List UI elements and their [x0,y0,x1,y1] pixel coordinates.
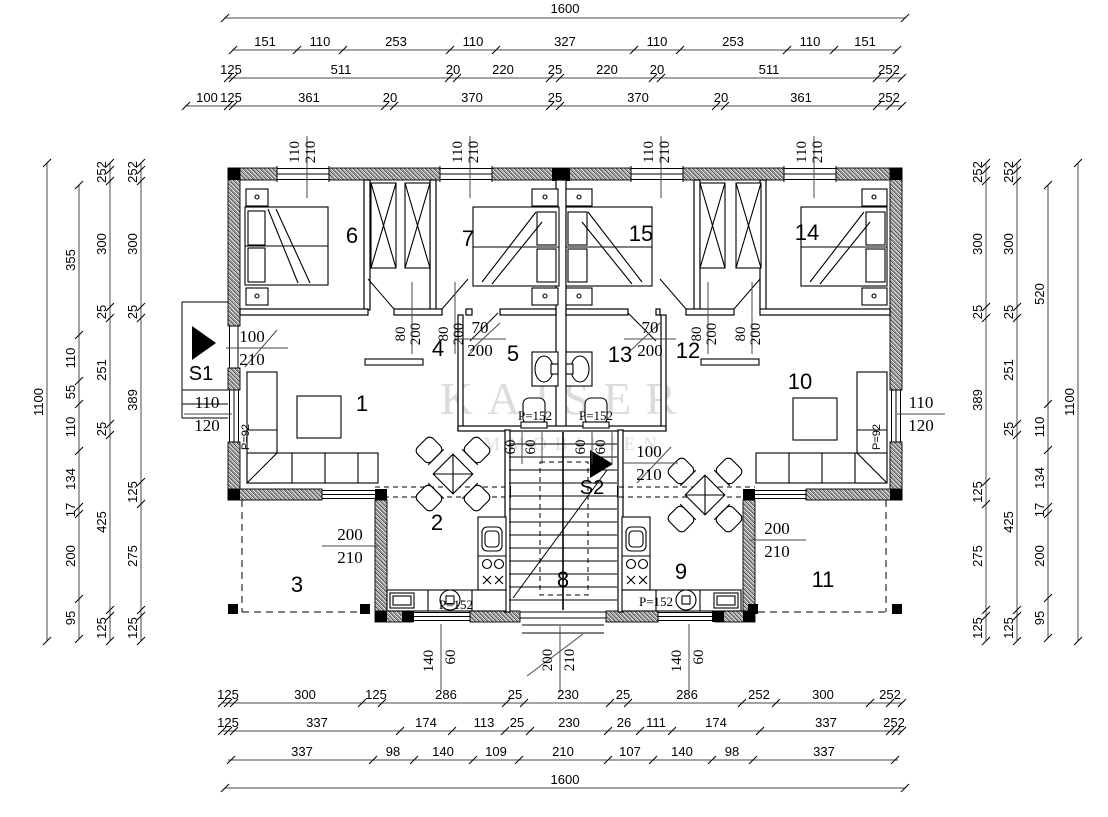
dimension-labels-bottom: 125 300 125 286 25 230 25 286 252 300 25… [217,687,905,787]
door-label: 200 [408,323,424,346]
dim-label: 511 [759,62,780,77]
window-bottom-left [413,611,470,622]
dim-label: 20 [383,90,397,105]
window-label: 210 [810,141,826,164]
dim-label: 60 [523,440,539,455]
dim-label: 337 [291,744,313,759]
room-label-14: 14 [795,220,819,245]
dim-label: 17 [63,503,78,517]
parapet-label-left: P=92 [240,424,252,450]
toilet-label-right: P=152 [579,408,613,423]
room-label-9: 9 [675,559,687,584]
dim-label: 511 [331,62,352,77]
door-label: 200 [704,323,720,346]
dim-label: 125 [125,617,140,639]
dim-label: 389 [125,389,140,411]
dim-label: 252 [970,161,985,183]
dim-label: 25 [970,305,985,319]
floor-plan-drawing: KAISER IMMOBILIEN [0,0,1108,817]
dimension-labels-top: 1600 151 110 253 110 327 110 253 110 151… [196,1,900,105]
floor-plan-page: KAISER IMMOBILIEN [0,0,1108,817]
dim-label: 110 [800,34,821,49]
bed-room-15 [566,189,652,305]
window-label: 110 [909,393,934,412]
room-label-5: 5 [507,341,519,366]
door-label: 210 [764,542,790,561]
dim-label: 252 [878,90,900,105]
dim-label: 252 [125,161,140,183]
window-right [890,390,902,442]
door-label: 100 [239,327,265,346]
door-label: 200 [748,323,764,346]
dining-set-left [414,435,492,513]
door-label: 210 [562,649,578,672]
dim-label: 425 [94,511,109,533]
dim-label: 252 [878,62,900,77]
dim-label: 110 [1032,417,1047,438]
window-bottom-right [658,611,715,622]
dim-label: 174 [705,715,727,730]
coffee-table-1 [297,396,341,438]
dim-label: 60 [573,440,589,455]
dim-label: 140 [432,744,454,759]
window-label: 120 [908,416,934,435]
dim-label: 252 [94,161,109,183]
dim-label: 25 [548,62,562,77]
door-label: 70 [472,318,489,337]
dim-label: 134 [63,468,78,490]
sofa-living-10 [756,372,887,483]
dim-label: 25 [548,90,562,105]
door-label: 80 [436,327,452,342]
dim-label: 98 [725,744,739,759]
door-label: 200 [467,341,493,360]
door-label: 200 [764,519,790,538]
dim-label: 107 [619,744,641,759]
dim-label: 110 [63,348,78,369]
dim-label: 20 [446,62,460,77]
window-label: 110 [794,141,810,163]
dim-label: 425 [1001,511,1016,533]
window-label: 140 [421,650,437,673]
dim-label: 25 [94,305,109,319]
dim-label: 125 [220,62,242,77]
room-label-6: 6 [346,223,358,248]
dim-label: 252 [1001,161,1016,183]
window-top-3 [631,166,683,182]
dim-label: 125 [970,617,985,639]
dim-label: 110 [647,34,668,49]
window-label: 210 [466,141,482,164]
dim-label: 25 [1001,305,1016,319]
entry-door-bottom [520,612,606,633]
door-label: 200 [540,649,556,672]
dim-label: 125 [365,687,387,702]
dim-label: 125 [970,481,985,503]
dim-label: 100 [196,90,218,105]
toilet-label-left: P=152 [518,408,552,423]
entry-door-left [228,326,240,368]
room-label-13: 13 [608,342,632,367]
dim-label: 1100 [31,388,46,416]
door-label: 80 [689,327,705,342]
dim-label: 389 [970,389,985,411]
dim-label: 355 [63,249,78,271]
boiler-label-right: P=152 [639,594,673,609]
dim-label: 25 [510,715,524,730]
dim-label: 125 [94,617,109,639]
dim-label: 253 [722,34,744,49]
window-label: 140 [669,650,685,673]
dim-label: 95 [1032,611,1047,625]
room-label-10: 10 [788,369,812,394]
coffee-table-10 [793,398,837,440]
dim-label: 361 [790,90,812,105]
bed-room-14 [801,189,887,305]
dim-label: 134 [1032,467,1047,489]
dim-label: 125 [217,687,239,702]
dim-label: 200 [63,545,78,567]
room-label-2: 2 [431,510,443,535]
room-label-11: 11 [812,567,835,592]
dim-label: 125 [217,715,239,730]
dim-label: 26 [617,715,631,730]
dim-label: 25 [508,687,522,702]
dim-label: 327 [554,34,576,49]
dim-label: 220 [596,62,618,77]
dim-label: 110 [463,34,484,49]
window-label: 120 [194,416,220,435]
boiler-label-left: P=152 [439,597,473,612]
dim-label: 60 [593,440,609,455]
room-label-8: 8 [557,567,569,592]
door-label: 210 [337,548,363,567]
dim-label: 253 [385,34,407,49]
dim-label: 361 [298,90,320,105]
terrace-door-left [322,489,375,500]
dim-label: 300 [1001,233,1016,255]
dim-label: 337 [815,715,837,730]
door-label: 210 [239,350,265,369]
dim-label: 275 [125,545,140,567]
window-top-4 [784,166,836,182]
dim-label: 110 [310,34,331,49]
section-marker-s1-arrow [192,326,216,360]
dim-label: 151 [254,34,276,49]
room-label-7: 7 [462,226,474,251]
room-label-15: 15 [629,221,653,246]
dim-label: 251 [1001,359,1016,381]
dim-label: 220 [492,62,514,77]
dim-label: 300 [812,687,834,702]
dim-label: 275 [970,545,985,567]
dim-label: 25 [125,305,140,319]
dim-label: 252 [883,715,905,730]
door-label: 80 [733,327,749,342]
dim-label: 520 [1032,283,1047,305]
dim-label: 370 [627,90,649,105]
window-label: 110 [450,141,466,163]
dim-label: 337 [306,715,328,730]
dim-label: 95 [63,611,78,625]
dim-label: 1600 [551,772,580,787]
dim-label: 337 [813,744,835,759]
window-left [228,390,240,442]
window-top-2 [440,166,492,182]
bed-room-7 [473,189,559,305]
dim-label: 300 [970,233,985,255]
dim-label: 140 [671,744,693,759]
door-label: 200 [337,525,363,544]
dim-label: 300 [125,233,140,255]
dim-label: 25 [1001,422,1016,436]
dim-label: 113 [474,715,495,730]
dim-label: 125 [125,481,140,503]
dim-label: 109 [485,744,507,759]
bed-room-6 [245,189,328,305]
dining-set-right [666,456,744,534]
door-label: 210 [636,465,662,484]
dim-label: 60 [503,440,519,455]
dim-label: 110 [63,417,78,438]
dim-label: 252 [748,687,770,702]
dim-label: 251 [94,359,109,381]
dim-label: 210 [552,744,574,759]
dim-label: 17 [1032,503,1047,517]
dim-label: 300 [94,233,109,255]
window-label: 60 [443,650,459,665]
dim-label: 1600 [551,1,580,16]
dim-label: 230 [557,687,579,702]
room-label-1: 1 [356,391,368,416]
parapet-label-right: P=92 [871,424,883,450]
dim-label: 111 [646,715,666,730]
window-label: 110 [287,141,303,163]
window-label: 210 [657,141,673,164]
door-label: 200 [451,323,467,346]
window-label: 110 [641,141,657,163]
dim-label: 151 [854,34,876,49]
dim-label: 200 [1032,545,1047,567]
dim-label: 25 [616,687,630,702]
door-label: 70 [642,318,659,337]
dim-label: 125 [220,90,242,105]
window-label: 110 [195,393,220,412]
dim-label: 55 [63,385,78,399]
dim-label: 25 [94,422,109,436]
dim-label: 98 [386,744,400,759]
door-label: 80 [393,327,409,342]
dim-label: 20 [650,62,664,77]
dim-label: 125 [1001,617,1016,639]
dim-label: 230 [558,715,580,730]
window-label: 60 [691,650,707,665]
terrace-door-right [755,489,806,500]
window-top-1 [277,166,329,182]
dim-label: 20 [714,90,728,105]
dim-label: 300 [294,687,316,702]
room-label-3: 3 [291,572,303,597]
window-label: 210 [303,141,319,164]
dim-label: 1100 [1062,388,1077,416]
section-label-s2: S2 [580,477,604,499]
dim-label: 252 [879,687,901,702]
door-label: 100 [636,442,662,461]
dim-label: 174 [415,715,437,730]
door-label: 200 [637,341,663,360]
sofa-living-1 [247,372,378,483]
dim-label: 286 [676,687,698,702]
dim-label: 286 [435,687,457,702]
dim-label: 370 [461,90,483,105]
section-label-s1: S1 [189,363,213,385]
